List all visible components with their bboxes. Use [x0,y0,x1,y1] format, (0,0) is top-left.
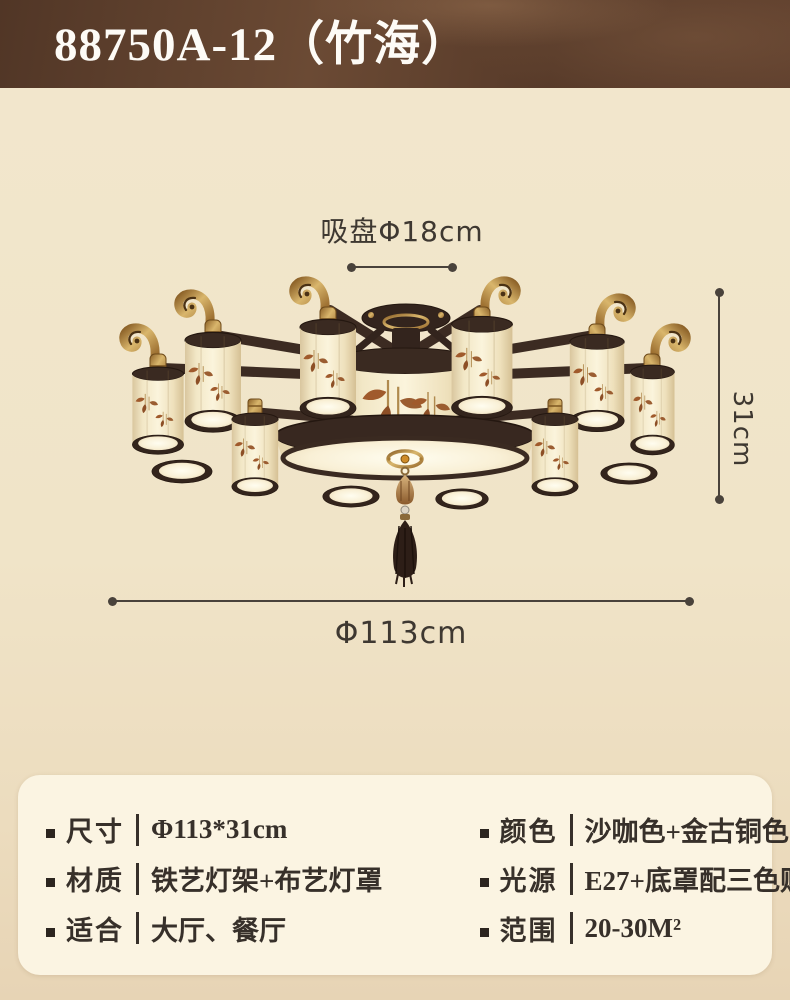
spec-label: 范围 [500,909,558,948]
dimension-height-label: 31cm [727,389,757,469]
spec-value: 铁艺灯架+布艺灯罩 [151,859,382,898]
header-banner: 88750A-12（竹海） [0,0,790,88]
spec-divider [570,912,573,944]
dimension-suction-label: 吸盘Φ18cm [300,210,504,250]
dimension-height: 31cm [718,292,720,500]
product-stage: 吸盘Φ18cm 31cm Φ113cm [0,88,790,775]
spec-row-coverage: 范围 20-30M² [480,904,790,953]
dimension-diameter: Φ113cm [112,600,690,651]
dimension-line-bottom [112,600,690,602]
spec-label: 尺寸 [66,810,124,849]
spec-column-right: 颜色 沙咖色+金古铜色 光源 E27+底罩配三色贴片 范围 20-30M² [452,805,772,953]
bullet-square-icon [46,829,55,838]
dimension-line-top [351,266,453,268]
product-model-title: 88750A-12（竹海） [0,0,790,90]
spec-row-suitable: 适合 大厅、餐厅 [46,904,452,953]
spec-label: 材质 [66,859,124,898]
spec-divider [136,912,139,944]
spec-value: E27+底罩配三色贴片 [585,859,790,898]
spec-card: 尺寸 Φ113*31cm 材质 铁艺灯架+布艺灯罩 适合 大厅、餐厅 颜色 [18,775,772,975]
bullet-square-icon [46,878,55,887]
spec-divider [136,814,139,846]
spec-label: 颜色 [500,810,558,849]
spec-value: 沙咖色+金古铜色 [585,810,789,849]
spec-row-color: 颜色 沙咖色+金古铜色 [480,805,790,854]
spec-row-material: 材质 铁艺灯架+布艺灯罩 [46,854,452,903]
spec-divider [136,863,139,895]
dimension-line-right [718,292,720,500]
spec-row-size: 尺寸 Φ113*31cm [46,805,452,854]
bullet-square-icon [46,928,55,937]
dimension-diameter-label: Φ113cm [335,616,468,651]
bullet-square-icon [480,928,489,937]
spec-divider [570,863,573,895]
bullet-square-icon [480,878,489,887]
spec-label: 光源 [500,859,558,898]
spec-divider [570,814,573,846]
bullet-square-icon [480,829,489,838]
spec-value: Φ113*31cm [151,814,287,845]
chandelier-illustration [0,88,790,775]
product-spec-page: 88750A-12（竹海） [0,0,790,975]
dimension-suction-plate: 吸盘Φ18cm [300,210,504,268]
spec-row-light-source: 光源 E27+底罩配三色贴片 [480,854,790,903]
spec-value: 20-30M² [585,913,682,944]
spec-column-left: 尺寸 Φ113*31cm 材质 铁艺灯架+布艺灯罩 适合 大厅、餐厅 [18,805,452,953]
spec-label: 适合 [66,909,124,948]
spec-value: 大厅、餐厅 [151,909,286,948]
